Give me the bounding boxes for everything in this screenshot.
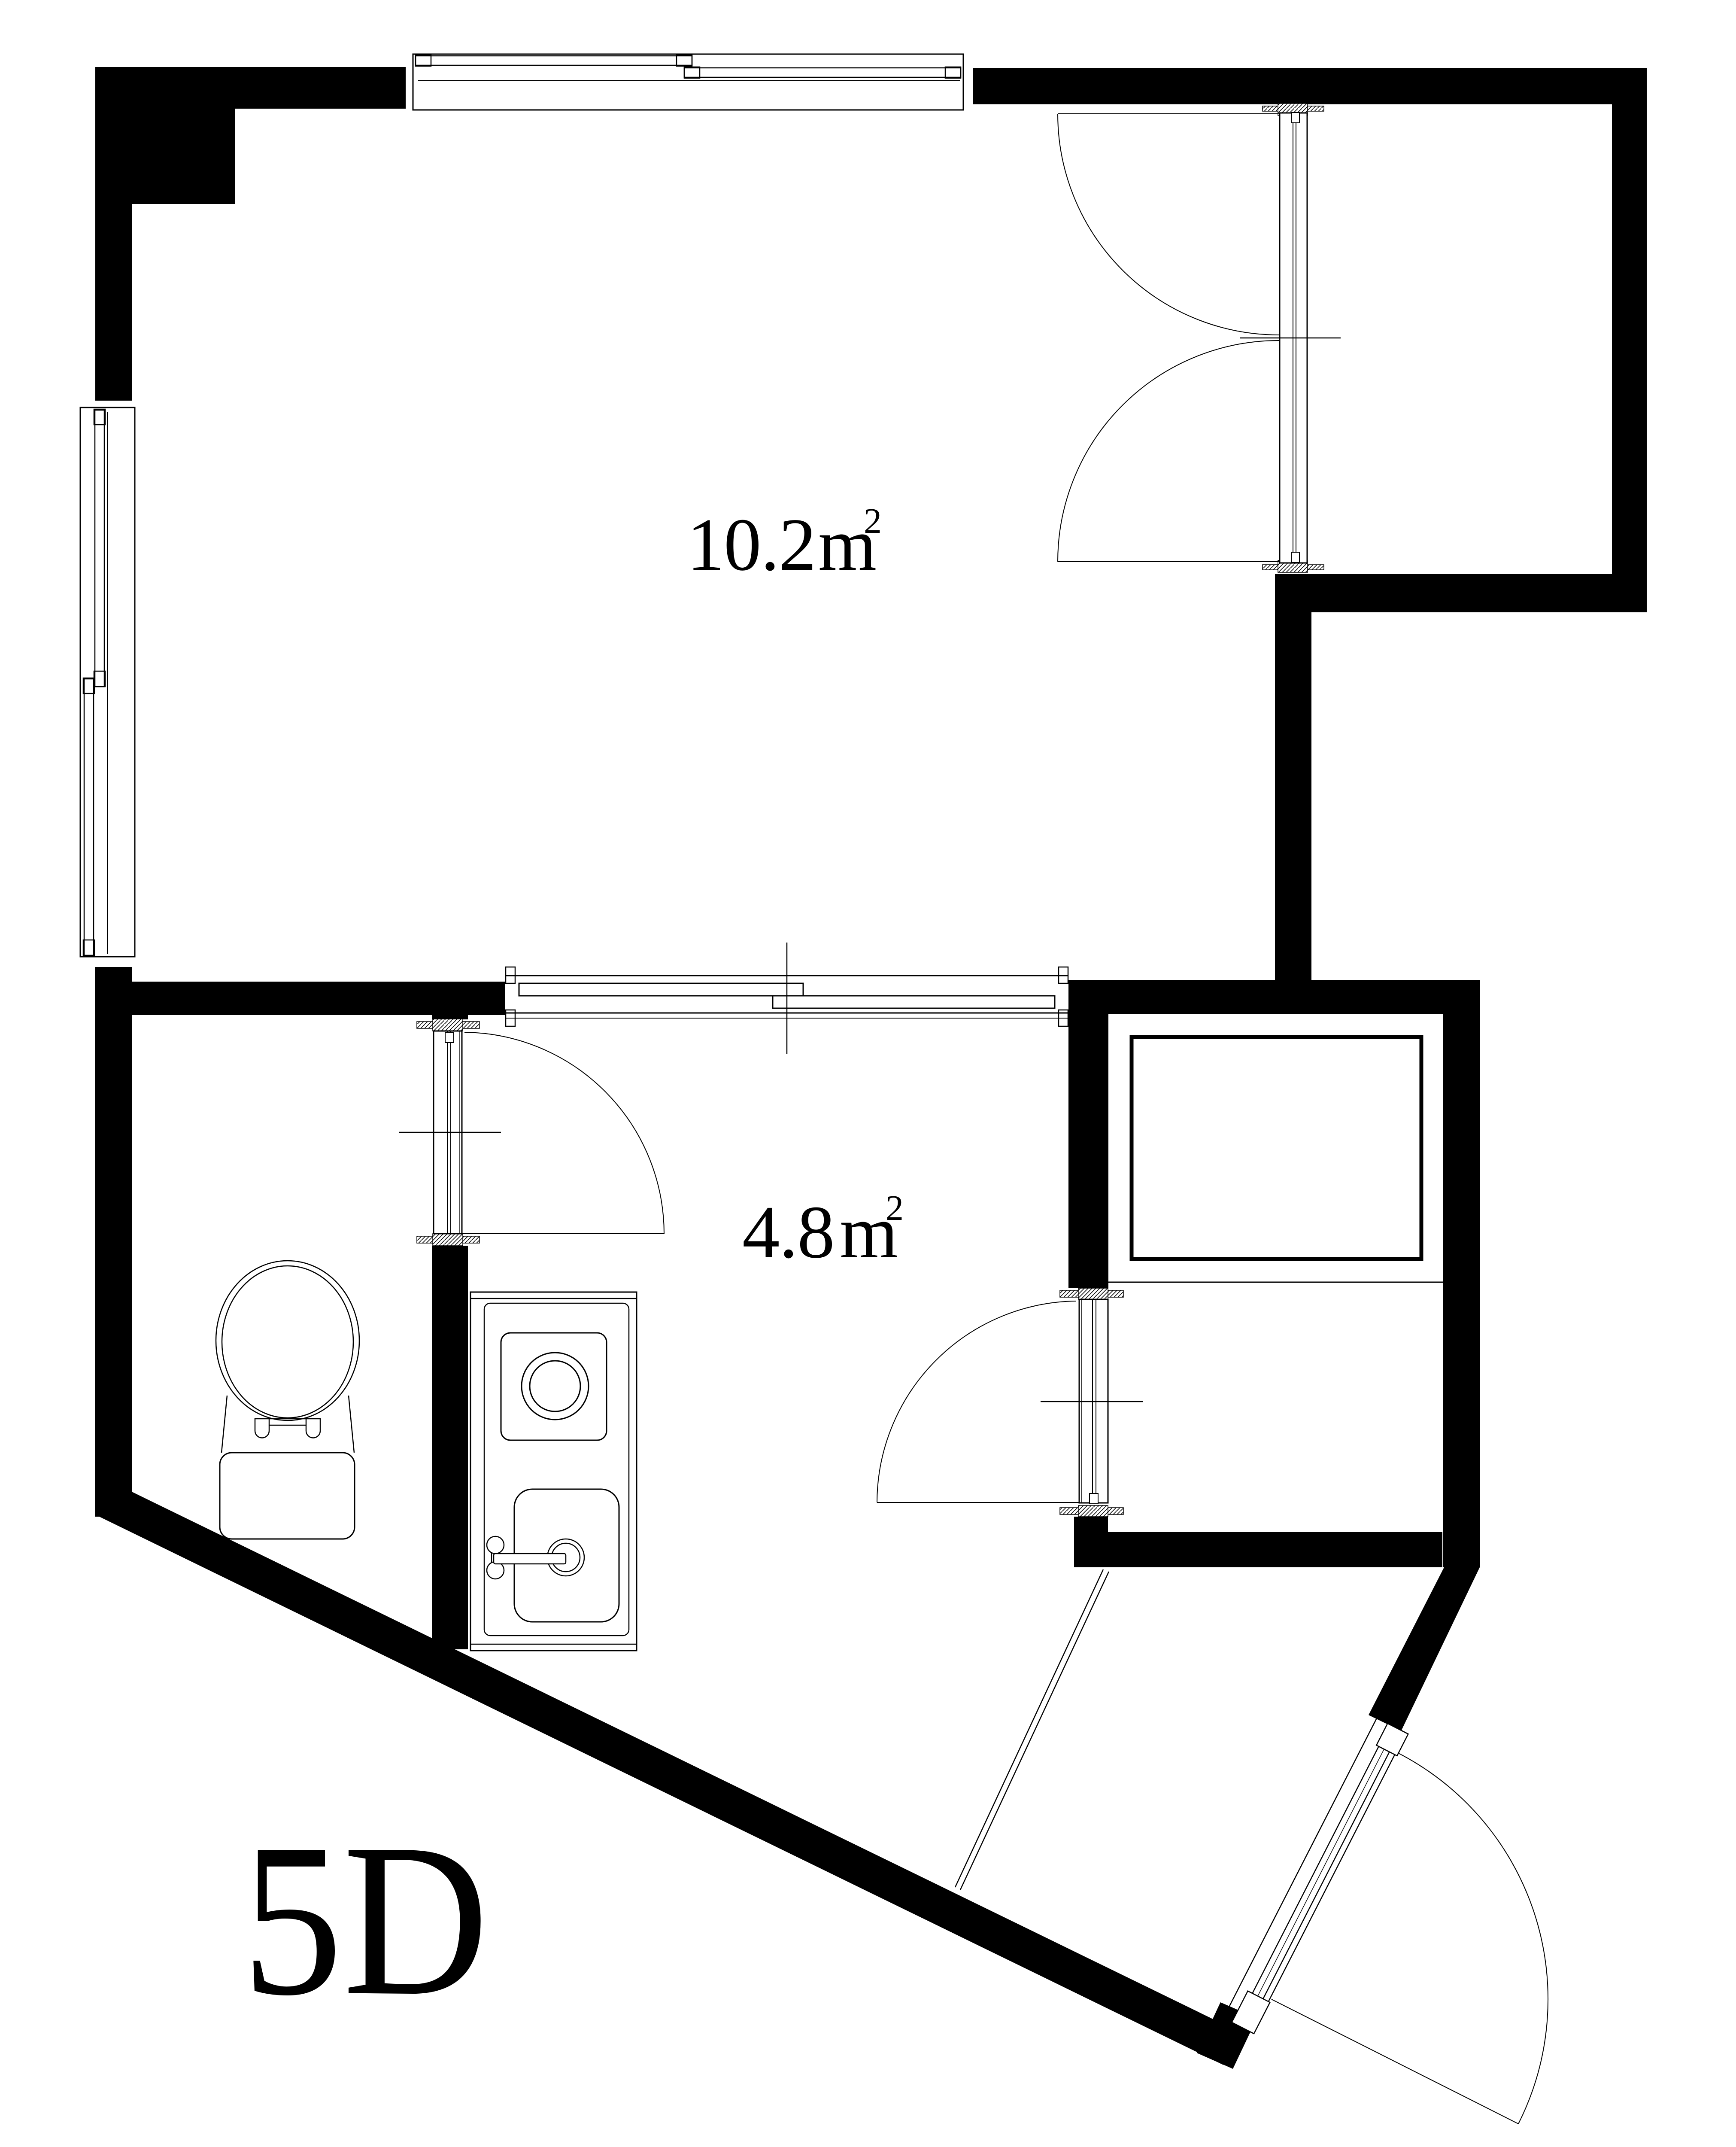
svg-text:5D: 5D [242, 1799, 489, 2041]
svg-text:2: 2 [886, 1188, 904, 1228]
svg-text:2: 2 [864, 501, 882, 541]
svg-text:10.2: 10.2 [687, 503, 816, 586]
svg-text:4.8: 4.8 [742, 1190, 834, 1274]
